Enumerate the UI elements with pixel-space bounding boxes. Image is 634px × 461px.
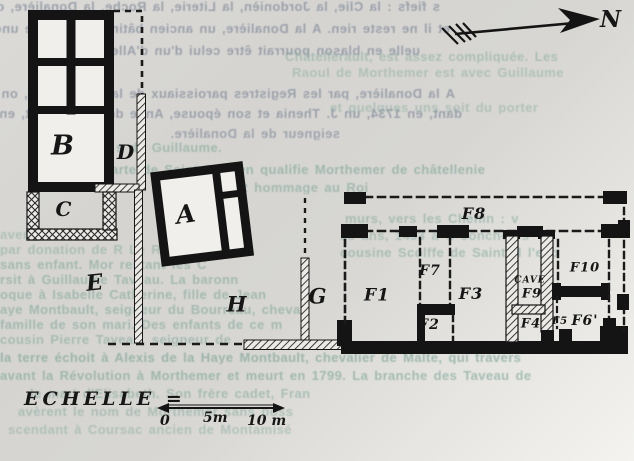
scanned-page: s fiefs : la Clie, la Jordonièn, la Lite… bbox=[0, 0, 634, 461]
scale-tick-5m: 5m bbox=[203, 411, 228, 425]
north-label: N bbox=[600, 8, 621, 31]
room-label-CAVE: CAVE bbox=[514, 277, 545, 286]
room-label-F2: F2 bbox=[418, 318, 440, 332]
room-label-F4: F4 bbox=[521, 318, 541, 331]
room-label-F5: F5 bbox=[552, 317, 568, 327]
scale-tick-0: 0 bbox=[160, 414, 170, 428]
room-label-B: B bbox=[51, 133, 75, 160]
room-label-F1: F1 bbox=[364, 288, 390, 305]
plan-labels-layer: ECHELLE = 0 5m 10 m N BDCAEHGF1F7F2F3F8C… bbox=[0, 0, 634, 461]
room-label-H: H bbox=[227, 294, 248, 315]
room-label-F8: F8 bbox=[462, 206, 487, 222]
room-label-F3: F3 bbox=[459, 286, 484, 302]
room-label-F6: F6' bbox=[572, 314, 599, 328]
room-label-C: C bbox=[56, 199, 73, 219]
scale-label: ECHELLE = bbox=[24, 390, 186, 409]
room-label-F7: F7 bbox=[419, 264, 441, 278]
room-label-F10: F10 bbox=[570, 262, 600, 275]
room-label-E: E bbox=[85, 271, 105, 295]
room-label-G: G bbox=[309, 286, 328, 307]
room-label-F9: F9 bbox=[522, 288, 542, 301]
room-label-A: A bbox=[174, 200, 198, 228]
scale-tick-10m: 10 m bbox=[247, 414, 286, 428]
room-label-D: D bbox=[117, 142, 135, 162]
